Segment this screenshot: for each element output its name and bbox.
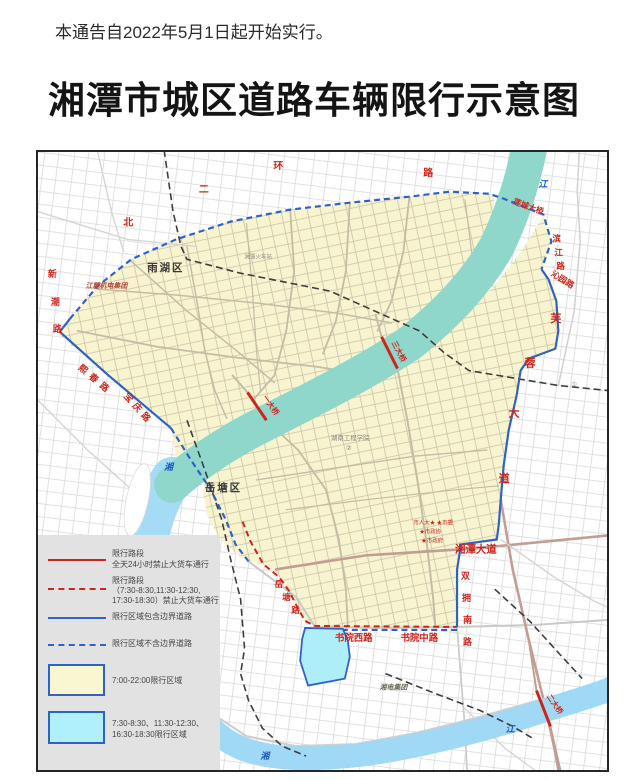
label-shuangyong-1: 双 (460, 571, 470, 581)
label-gov-2: ★市政协 (419, 528, 441, 536)
legend-item-5-title: 7:00-22:00限行区域 (112, 677, 182, 685)
label-shuangyong-3: 南 (463, 614, 472, 625)
legend-cyan-swatch (48, 711, 105, 744)
label-river-jiang-top: 江 (538, 179, 548, 189)
label-shuangyong-2: 拥 (462, 592, 471, 603)
label-binjiang-2: 江 (554, 247, 563, 257)
legend-red-solid-line (48, 559, 106, 561)
label-furong-4: 道 (499, 471, 510, 485)
label-north-ring-2: 二 (199, 184, 209, 196)
label-furong-3: 大 (509, 405, 520, 419)
legend-item-1-desc: 全天24小时禁止大货车通行 (112, 561, 209, 569)
legend-item-4-title: 限行区域不含边界道路 (112, 640, 192, 648)
label-yuetang-district: 岳塘区 (205, 481, 242, 494)
label-north-ring-3: 环 (273, 160, 283, 172)
label-north-ring-4: 路 (423, 166, 433, 179)
label-yuetang-road-1: 岳 (274, 579, 283, 589)
label-furong-1: 芙 (550, 311, 561, 325)
notice-text: 本通告自2022年5月1日起开始实行。 (55, 18, 333, 43)
restriction-map: 北 二 环 路 新 潮 路 熙春路 宝庆路 江麓机电集团 雨湖区 湘潭火车站 江… (36, 150, 609, 772)
label-circle2: ② (346, 445, 352, 452)
legend-item-6-title: 7:30-8:30、11:30-12:30、 (112, 720, 204, 728)
map-legend: 限行路段 全天24小时禁止大货车通行 限行路段 （7:30-8:30,11:30… (38, 535, 220, 770)
label-xiangdian-group: 湘电集团 (380, 683, 409, 692)
label-xiangtan-avenue: 湘潭大道 (455, 542, 497, 555)
label-shuangyong-4: 路 (463, 636, 472, 647)
legend-red-dashed-line (48, 588, 106, 590)
legend-item-2-title: 限行路段 (112, 577, 144, 585)
label-hunan-institute: 湖南工程学院 (331, 433, 370, 442)
label-xinchao-2: 潮 (51, 296, 60, 307)
label-gov-3: ★市政府 (421, 536, 443, 544)
label-railway-station: 湘潭火车站 (245, 252, 273, 260)
page-root: { "notice": "本通告自2022年5月1日起开始实行。", "titl… (0, 0, 640, 780)
label-north-ring-1: 北 (123, 216, 133, 229)
label-furong-2: 蓉 (525, 356, 536, 370)
label-circle1: ① (571, 381, 577, 388)
label-binjiang-1: 滨 (552, 233, 561, 243)
label-shuyuan-mid: 书院中路 (400, 632, 438, 643)
label-yuhu-district: 雨湖区 (147, 261, 184, 274)
legend-blue-dashed-line (48, 644, 106, 646)
legend-blue-solid-line (48, 617, 106, 619)
legend-item-1-title: 限行路段 (112, 550, 144, 558)
label-xinchao-3: 路 (53, 323, 62, 334)
label-yuetang-road-3: 路 (291, 605, 300, 615)
legend-item-6-desc: 16:30-18:30限行区域 (112, 731, 187, 739)
page-title: 湘潭市城区道路车辆限行示意图 (48, 70, 580, 124)
label-river-jiang-bottom: 江 (506, 724, 516, 734)
legend-item-2-desc1: （7:30-8:30,11:30-12:30, (112, 587, 200, 595)
label-gov-1: 市人大★ ★市委 (413, 519, 453, 527)
legend-item-2-desc2: 17:30-18:30）禁止大货车通行 (112, 597, 219, 605)
label-xinchao-1: 新 (48, 268, 57, 279)
label-shuyuan-west: 书院西路 (335, 632, 373, 643)
legend-item-3-title: 限行区域包含边界道路 (112, 613, 192, 621)
label-jianglu-group: 江麓机电集团 (86, 281, 129, 290)
label-yuetang-road-2: 塘 (282, 592, 291, 602)
legend-yellow-swatch (48, 664, 105, 696)
